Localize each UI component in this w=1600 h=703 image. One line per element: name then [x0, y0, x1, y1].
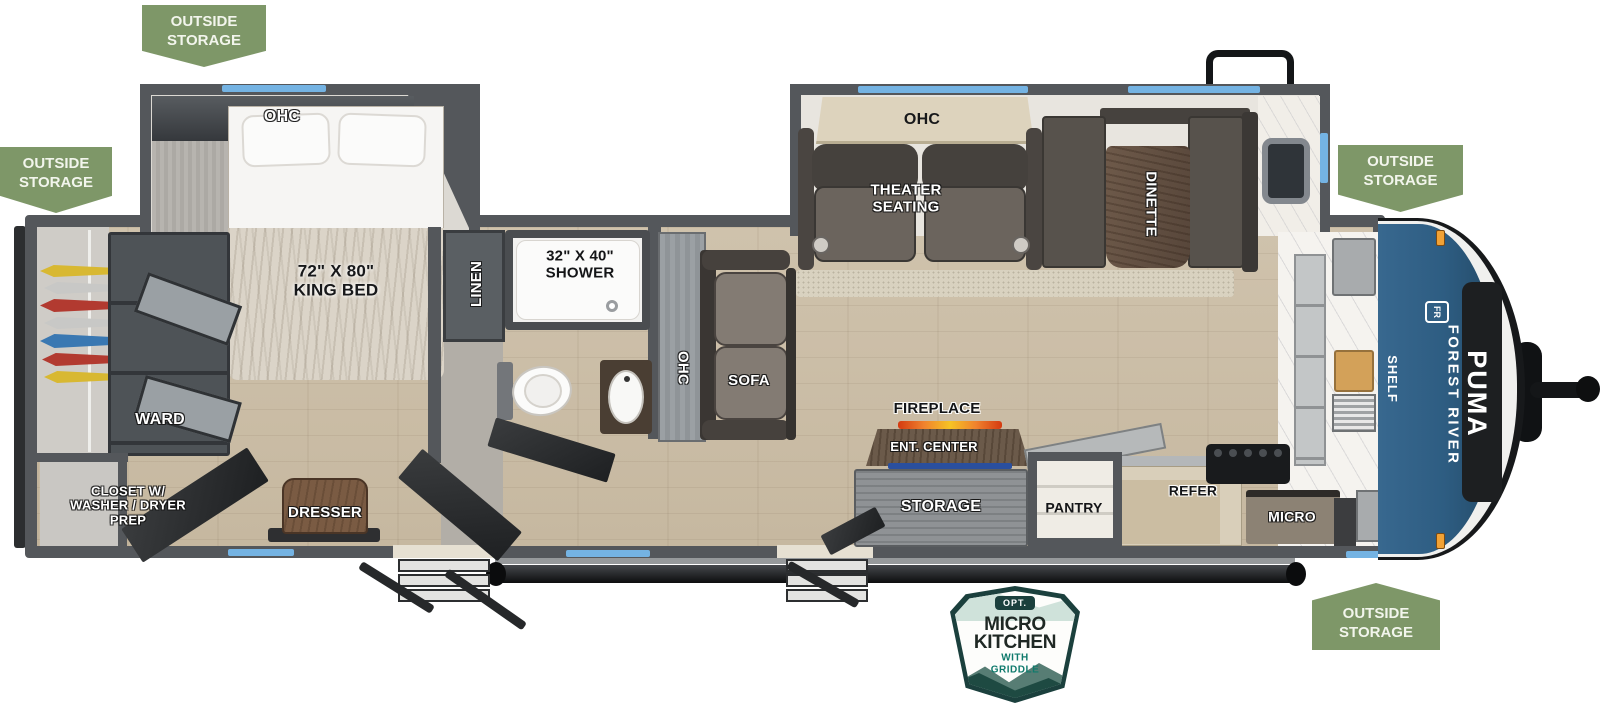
slide-topper-bedroom	[222, 85, 326, 92]
bottom-accent-1	[228, 549, 294, 556]
theater-ohc-label: OHC	[904, 111, 940, 129]
bed-blanket	[228, 228, 444, 380]
slide-window-strip	[1320, 133, 1328, 183]
dresser-label: DRESSER	[288, 505, 362, 522]
option-tag: OPT.	[995, 596, 1035, 610]
bath-wall-left	[428, 227, 441, 463]
ent-center-label: ENT. CENTER	[890, 440, 977, 454]
slide-topper-theater	[858, 86, 1028, 93]
dinette-window	[1262, 138, 1310, 204]
brand-logo-text: FR	[1432, 306, 1442, 318]
floorplan-canvas: OUTSIDE STORAGE OUTSIDE STORAGE OUTSIDE …	[0, 0, 1600, 703]
kitchen-cabinet-column	[1294, 254, 1326, 466]
hitch-coupler	[1576, 376, 1600, 402]
theater-cupholder-right	[1012, 236, 1030, 254]
fireplace-label: FIREPLACE	[894, 401, 981, 418]
theater-armrest-left	[798, 128, 814, 270]
sofa-ohc-cabinet	[658, 232, 706, 442]
ward-label: WARD	[135, 411, 185, 429]
upper-cabinet	[1332, 238, 1376, 296]
bedroom-ohc-label: OHC	[264, 108, 300, 126]
outside-storage-badge-right: OUTSIDE STORAGE	[1338, 145, 1463, 212]
dinette-bench-left	[1042, 116, 1106, 268]
bottom-accent-3	[1346, 551, 1382, 558]
sofa-cushion-top	[714, 272, 788, 346]
sofa-front-lip	[786, 268, 796, 440]
sofa-armrest-top	[702, 250, 790, 270]
marker-light-bottom	[1436, 533, 1445, 549]
entry-step	[398, 559, 490, 572]
dinette-bench-right	[1188, 116, 1244, 268]
shower-drain	[606, 300, 618, 312]
brand-maker-label: FOREST RIVER	[1444, 325, 1461, 466]
cooktop	[1206, 444, 1290, 484]
sofa-armrest-bottom	[702, 420, 790, 440]
bedroom-slide-side-panel	[152, 141, 228, 239]
outside-storage-badge-bottom: OUTSIDE STORAGE	[1312, 583, 1440, 650]
option-subtitle: WITH GRIDDLE	[991, 653, 1040, 676]
griddle	[1332, 394, 1376, 432]
slide-topper-dinette	[1128, 86, 1260, 93]
micro-label: MICRO	[1268, 509, 1316, 524]
refer-label: REFER	[1169, 483, 1217, 498]
dinette-backrest-right	[1242, 112, 1258, 272]
outside-storage-badge-top: OUTSIDE STORAGE	[142, 5, 266, 67]
fireplace-flame	[898, 421, 1002, 429]
dinette-label: DINETTE	[1142, 171, 1159, 237]
pantry-label: PANTRY	[1045, 500, 1102, 515]
awning-endcap-right	[1286, 562, 1306, 586]
brand-model-label: PUMA	[1461, 350, 1491, 438]
rug	[796, 270, 1234, 297]
kitchen-corner-shadow	[1334, 498, 1356, 546]
toilet-seat	[524, 374, 562, 408]
tv-strip	[888, 463, 1012, 469]
shower-label: 32" X 40" SHOWER	[546, 249, 615, 282]
linen-label: LINEN	[469, 261, 486, 307]
lower-cabinet	[1356, 490, 1380, 542]
marker-light-top	[1436, 230, 1445, 246]
option-title: MICRO KITCHEN	[974, 616, 1056, 652]
sofa-label: SOFA	[728, 373, 770, 390]
brand-logo: FR	[1425, 301, 1449, 323]
awning-rail	[495, 558, 1295, 564]
shelf-label: SHELF	[1385, 355, 1399, 403]
option-badge: OPT. MICRO KITCHEN WITH GRIDDLE	[950, 586, 1080, 703]
king-bed-label: 72" X 80" KING BED	[294, 262, 379, 299]
bottom-accent-2	[566, 550, 650, 557]
pillow-right	[337, 112, 427, 167]
bath-faucet	[624, 376, 630, 382]
storage-label: STORAGE	[901, 498, 981, 516]
outside-storage-badge-left: OUTSIDE STORAGE	[0, 147, 112, 213]
theater-cupholder-left	[812, 236, 830, 254]
closet-label: CLOSET W/ WASHER / DRYER PREP	[70, 485, 186, 528]
toilet-tank	[497, 362, 513, 420]
cutting-board	[1334, 350, 1374, 392]
awning-tube	[492, 565, 1298, 583]
closet-wall-top	[36, 453, 128, 462]
theater-seating-label: THEATER SEATING	[870, 183, 941, 216]
sofa-ohc-label: OHC	[674, 351, 691, 385]
